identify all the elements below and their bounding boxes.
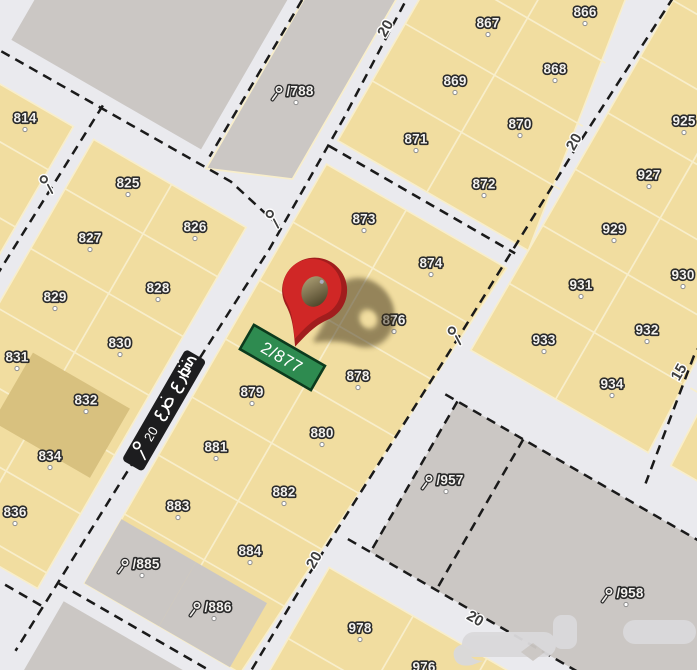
svg-text:832: 832: [74, 393, 97, 408]
svg-text:828: 828: [146, 281, 169, 296]
svg-text:934: 934: [600, 377, 623, 392]
svg-text:933: 933: [532, 333, 555, 348]
svg-text:884: 884: [238, 544, 261, 559]
svg-text:825: 825: [116, 176, 139, 191]
svg-text:931: 931: [569, 278, 592, 293]
svg-text:880: 880: [310, 426, 333, 441]
svg-text:882: 882: [272, 485, 295, 500]
svg-text:878: 878: [346, 369, 369, 384]
svg-text:/886: /886: [204, 600, 231, 615]
svg-text:925: 925: [672, 114, 695, 129]
svg-text:881: 881: [204, 440, 227, 455]
svg-text:930: 930: [671, 268, 694, 283]
svg-text:/957: /957: [436, 473, 463, 488]
svg-text:867: 867: [476, 16, 499, 31]
svg-text:830: 830: [108, 336, 131, 351]
svg-text:872: 872: [472, 177, 495, 192]
svg-text:978: 978: [348, 621, 371, 636]
svg-text:870: 870: [508, 117, 531, 132]
svg-text:874: 874: [419, 256, 442, 271]
svg-text:834: 834: [38, 449, 61, 464]
svg-text:871: 871: [404, 132, 427, 147]
svg-text:866: 866: [573, 5, 596, 20]
svg-text:/788: /788: [286, 84, 313, 99]
svg-text:814: 814: [13, 111, 36, 126]
svg-text:929: 929: [602, 222, 625, 237]
svg-text:836: 836: [3, 505, 26, 520]
svg-text:/885: /885: [132, 557, 159, 572]
svg-text:869: 869: [443, 74, 466, 89]
svg-text:927: 927: [637, 168, 660, 183]
svg-text:829: 829: [43, 290, 66, 305]
svg-text:873: 873: [352, 212, 375, 227]
svg-text:831: 831: [5, 350, 28, 365]
svg-text:932: 932: [635, 323, 658, 338]
svg-text:976: 976: [412, 660, 435, 670]
svg-text:868: 868: [543, 62, 566, 77]
svg-text:879: 879: [240, 385, 263, 400]
svg-text:883: 883: [166, 499, 189, 514]
svg-text:/958: /958: [616, 586, 643, 601]
svg-text:827: 827: [78, 231, 101, 246]
svg-text:826: 826: [183, 220, 206, 235]
